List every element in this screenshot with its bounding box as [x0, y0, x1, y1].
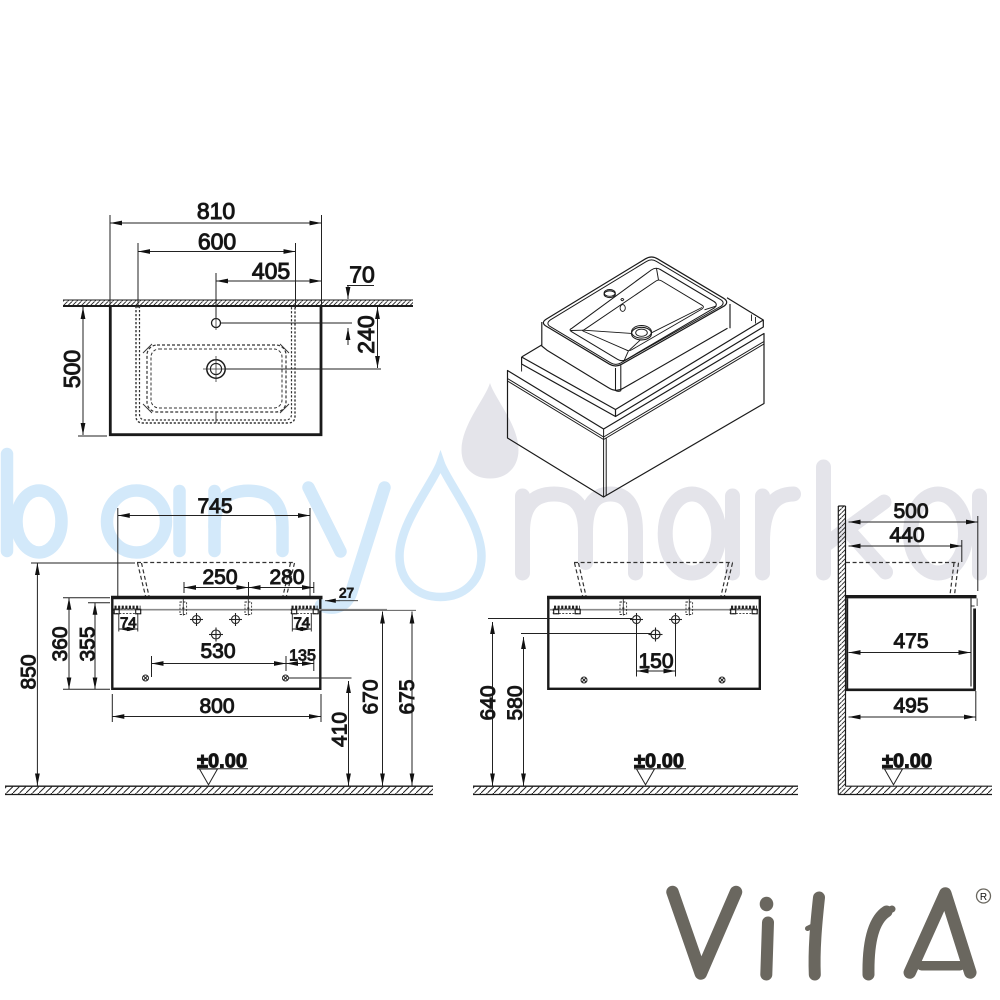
svg-text:500: 500 [893, 500, 928, 523]
svg-text:850: 850 [18, 654, 41, 689]
svg-text:R: R [980, 892, 987, 903]
svg-text:70: 70 [349, 262, 375, 288]
svg-text:27: 27 [339, 586, 354, 601]
svg-text:675: 675 [396, 679, 419, 714]
svg-text:495: 495 [893, 695, 928, 718]
svg-text:74: 74 [120, 615, 137, 632]
svg-text:745: 745 [197, 495, 232, 518]
svg-text:405: 405 [252, 258, 290, 284]
svg-text:280: 280 [269, 566, 304, 589]
svg-text:580: 580 [504, 685, 527, 720]
svg-text:475: 475 [893, 630, 928, 653]
svg-text:800: 800 [199, 695, 234, 718]
svg-text:355: 355 [76, 626, 99, 661]
svg-text:670: 670 [360, 679, 383, 714]
svg-text:150: 150 [638, 650, 673, 673]
svg-text:135: 135 [289, 648, 316, 665]
svg-text:600: 600 [198, 229, 236, 255]
svg-text:440: 440 [889, 524, 924, 547]
svg-text:74: 74 [293, 615, 310, 632]
svg-text:500: 500 [59, 350, 85, 388]
svg-text:250: 250 [202, 566, 237, 589]
svg-text:530: 530 [200, 640, 235, 663]
svg-text:240: 240 [353, 315, 379, 353]
svg-text:410: 410 [329, 712, 352, 747]
svg-text:640: 640 [477, 685, 500, 720]
svg-text:810: 810 [197, 198, 235, 224]
svg-text:360: 360 [49, 626, 72, 661]
